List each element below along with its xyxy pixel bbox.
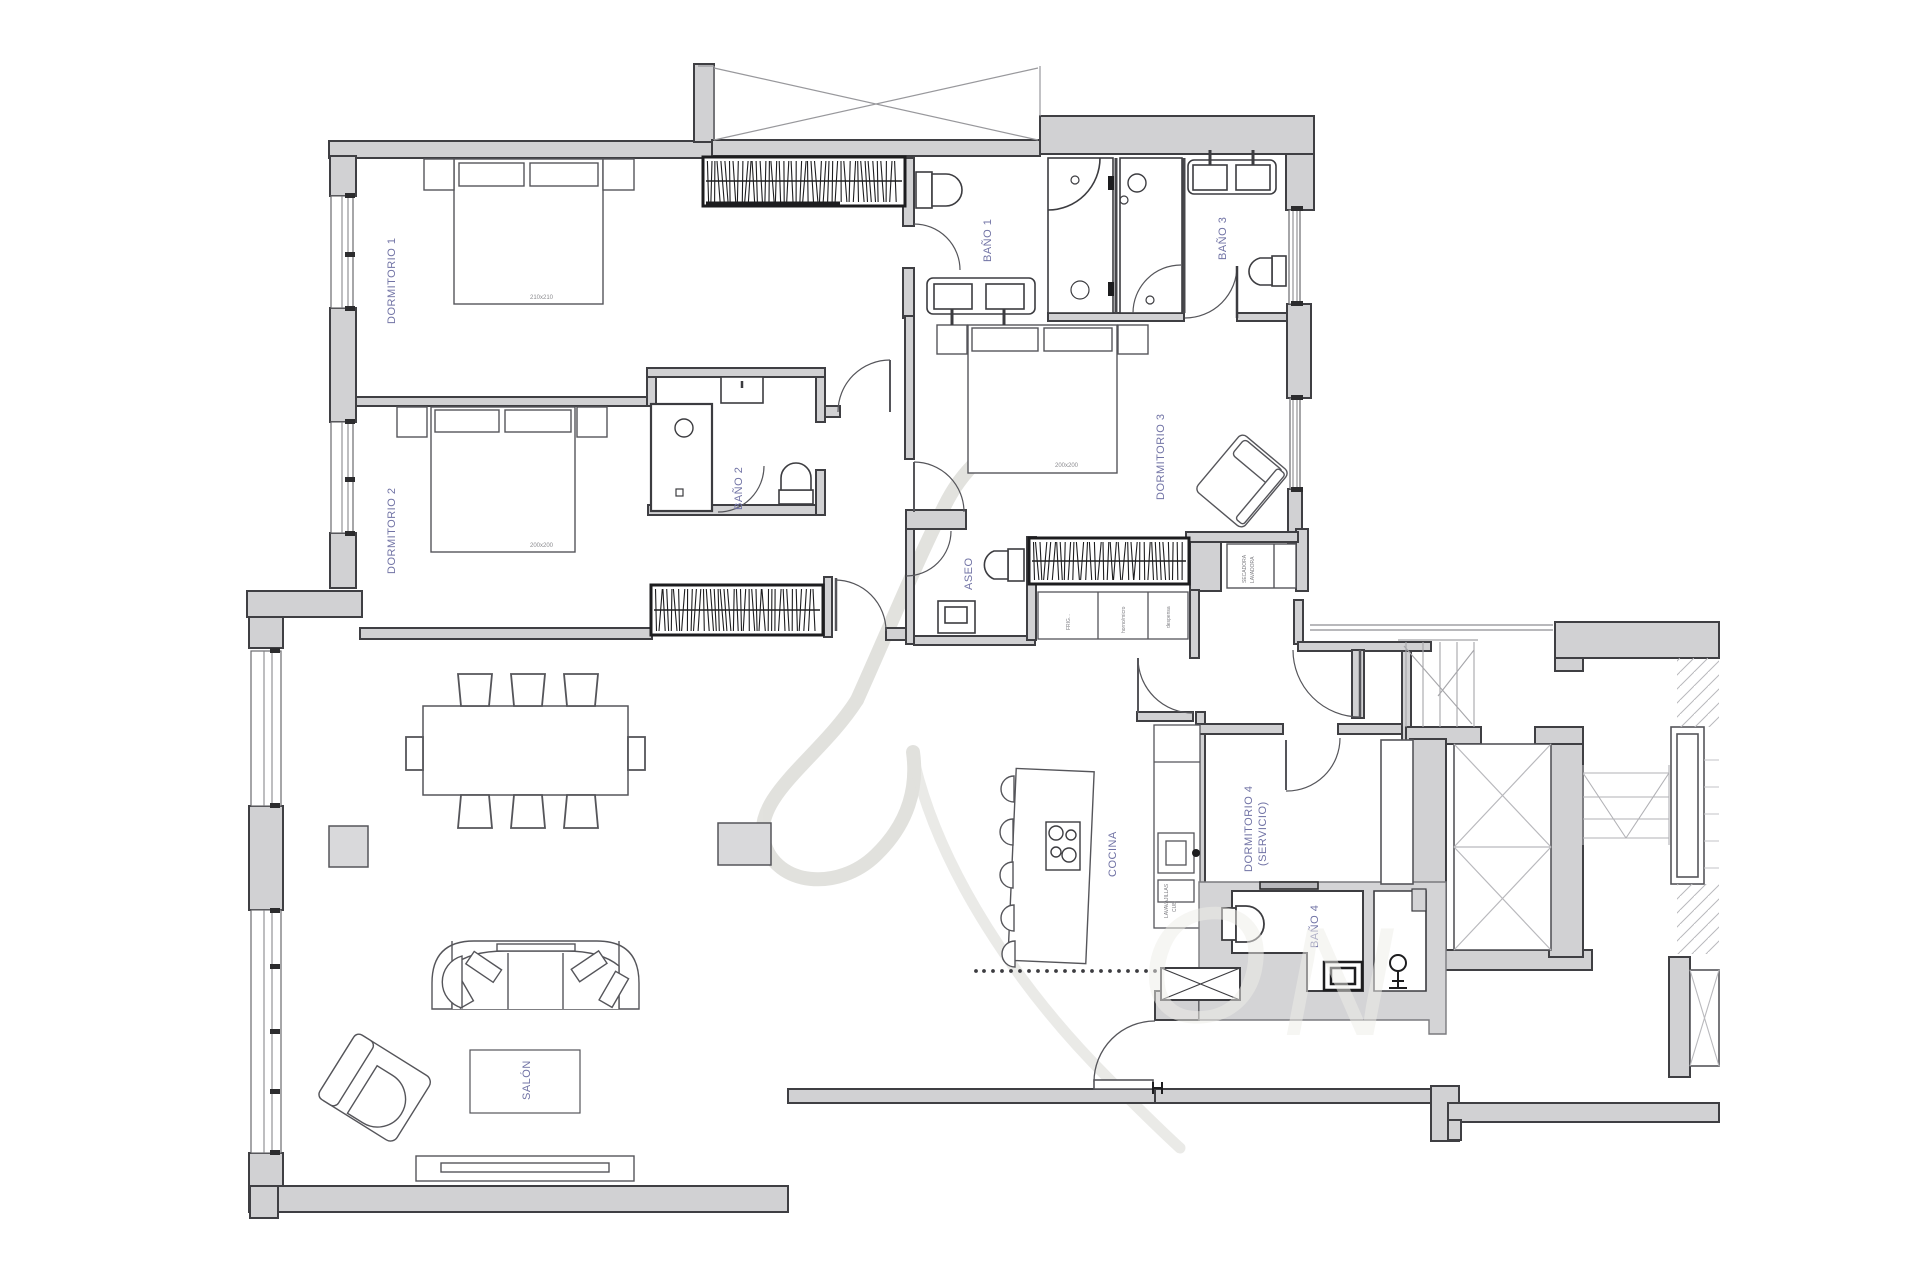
svg-text:DORMITORIO 3: DORMITORIO 3: [1155, 414, 1167, 500]
svg-text:SALÓN: SALÓN: [520, 1060, 533, 1100]
svg-text:LAVADORA: LAVADORA: [1250, 556, 1256, 583]
svg-text:DORMITORIO 2: DORMITORIO 2: [386, 488, 398, 574]
svg-text:ASEO: ASEO: [963, 557, 975, 590]
svg-text:210x210: 210x210: [530, 295, 554, 301]
svg-text:O: O: [1140, 873, 1268, 1057]
svg-text:DORMITORIO 4: DORMITORIO 4: [1243, 786, 1255, 872]
svg-text:horno/micro: horno/micro: [1121, 606, 1127, 633]
svg-text:200x200: 200x200: [530, 543, 554, 549]
svg-text:despensa: despensa: [1166, 606, 1172, 628]
svg-text:BAÑO 3: BAÑO 3: [1216, 217, 1229, 260]
svg-text:BAÑO 2: BAÑO 2: [732, 467, 745, 510]
svg-text:SECADORA: SECADORA: [1242, 554, 1248, 583]
svg-text:DORMITORIO 1: DORMITORIO 1: [386, 238, 398, 324]
svg-text:(SERVICIO): (SERVICIO): [1257, 801, 1269, 866]
svg-text:COCINA: COCINA: [1107, 831, 1119, 877]
svg-text:FRIG...: FRIG...: [1066, 614, 1072, 630]
svg-text:200x200: 200x200: [1055, 463, 1079, 469]
svg-text:N: N: [1282, 895, 1395, 1068]
svg-text:BAÑO 1: BAÑO 1: [981, 219, 994, 262]
